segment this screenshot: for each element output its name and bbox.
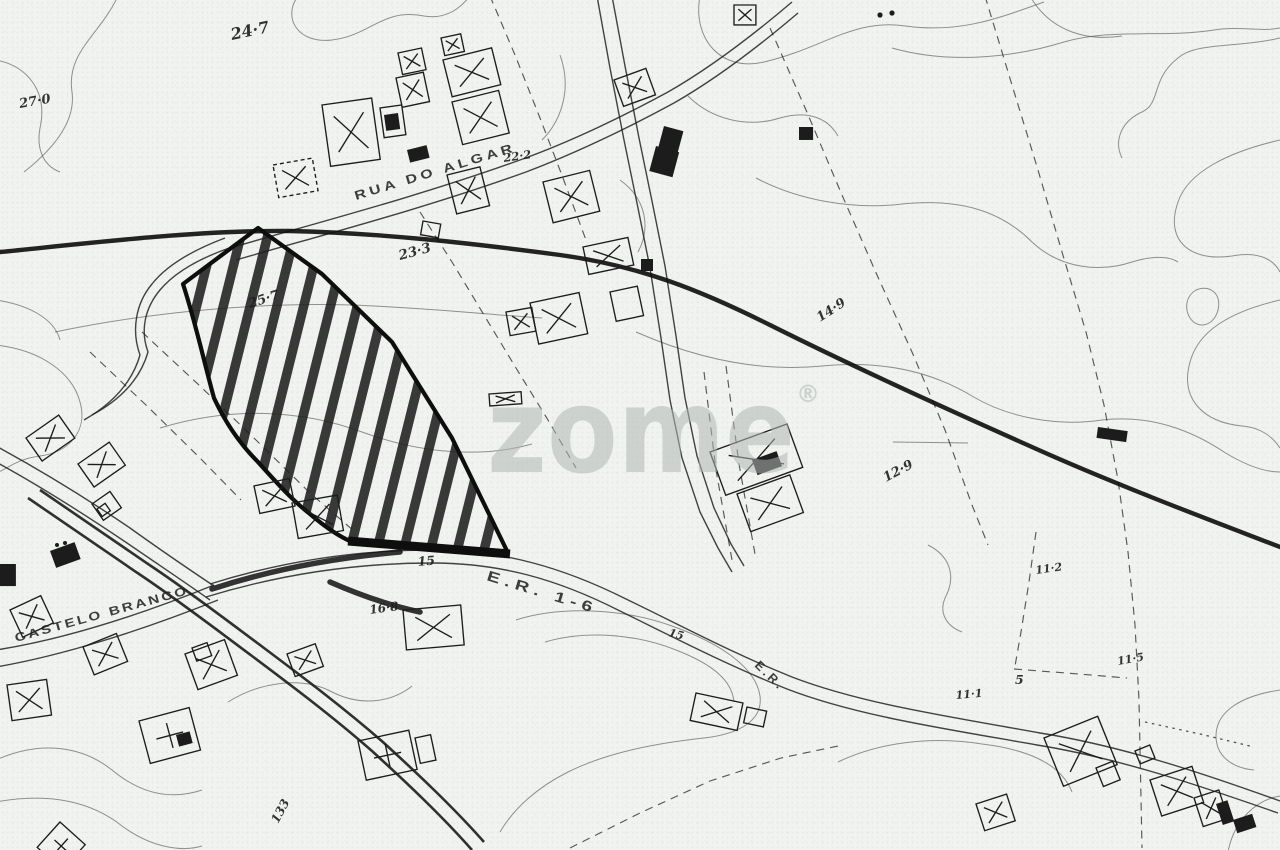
watermark-text: zome [487, 362, 795, 500]
elevation-label: 24·7 [228, 17, 271, 44]
building [614, 68, 655, 106]
elevation-label: 15 [667, 626, 685, 642]
building [734, 5, 756, 25]
building [398, 48, 426, 75]
road-rua-do-algar [230, 2, 798, 260]
elevation-label: 23·3 [396, 240, 433, 264]
building [543, 170, 600, 222]
building [452, 90, 509, 144]
building [976, 794, 1015, 831]
building [441, 34, 464, 56]
road-number-label: E.R. [752, 658, 788, 693]
elevation-label: 16·8 [368, 599, 400, 617]
parcel-number-label: 133 [268, 797, 292, 826]
ink-dot [55, 543, 59, 547]
building-solid [407, 145, 430, 162]
ink-mark [1096, 427, 1127, 442]
building [322, 98, 380, 166]
watermark: zome ® [487, 362, 820, 500]
building [37, 822, 85, 850]
junction-mark [641, 259, 653, 271]
ink-dot [63, 541, 67, 545]
street-name-label: CASTELO BRANCO [13, 583, 190, 645]
building [139, 708, 200, 764]
map-canvas: zome ® 24·7 27·0 RUA DO ALGAR 22·2 23·3 … [0, 0, 1280, 850]
building [1044, 716, 1117, 786]
ink-dot [877, 12, 882, 17]
building [443, 48, 501, 97]
building [7, 679, 52, 720]
building [396, 72, 430, 107]
building [415, 735, 436, 764]
building [690, 693, 743, 730]
elevation-label: 14·9 [814, 296, 849, 326]
elevation-label: 11·5 [1116, 650, 1145, 667]
ink-dot [889, 10, 894, 15]
elevation-label: 11·2 [1035, 560, 1064, 577]
building-dashed [273, 158, 318, 198]
building-solid [50, 542, 81, 568]
building [78, 442, 125, 487]
street-name-label: RUA DO ALGAR [353, 140, 518, 203]
building [530, 293, 588, 344]
elevation-label: 27·0 [17, 92, 52, 112]
elevation-label: 15 [417, 553, 436, 569]
building [610, 286, 644, 321]
scanned-map: zome ® 24·7 27·0 RUA DO ALGAR 22·2 23·3 … [0, 0, 1280, 850]
road-er-1-6 [206, 550, 1280, 813]
watermark-registered-icon: ® [796, 380, 820, 408]
building [447, 167, 490, 214]
building-solid [384, 113, 400, 131]
elevation-label: 12·9 [881, 457, 916, 485]
building-solid [0, 564, 16, 586]
building [358, 730, 417, 780]
elevation-label: 11·1 [955, 687, 983, 702]
number-label: 5 [1015, 672, 1024, 687]
elevation-label: 22·2 [501, 147, 532, 165]
building-solid [799, 127, 813, 140]
building-solid [1233, 814, 1256, 833]
subject-plot-area [183, 228, 508, 553]
building [287, 644, 323, 677]
